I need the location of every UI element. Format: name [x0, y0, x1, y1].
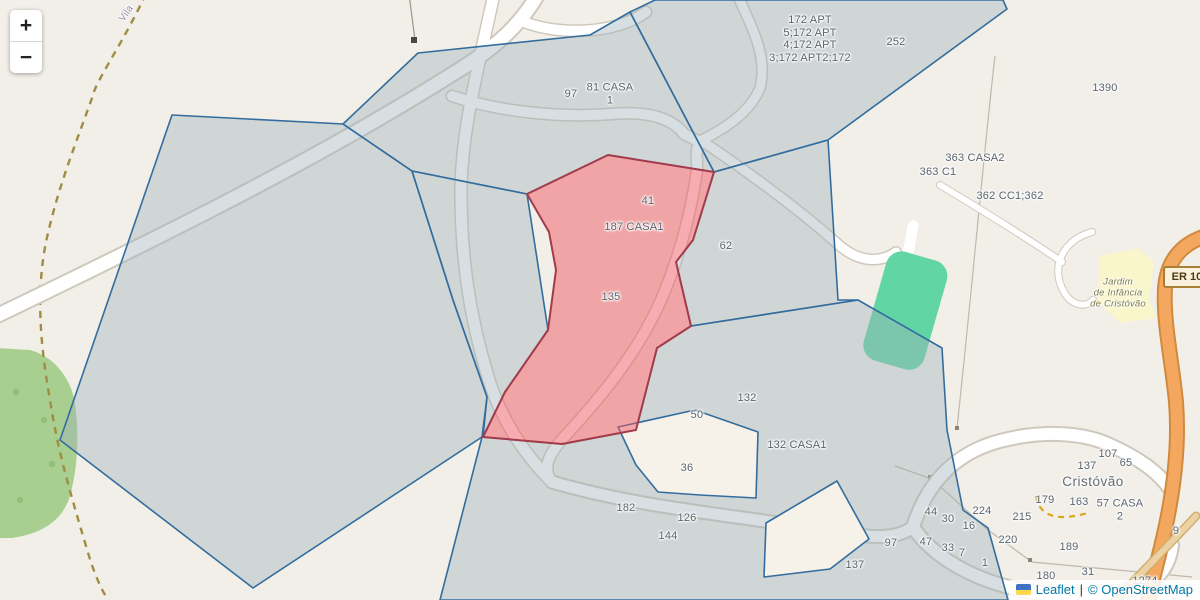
road-shield: ER 108	[1163, 266, 1200, 288]
leaflet-link[interactable]: Leaflet	[1036, 582, 1075, 597]
attribution-bar: Leaflet | © OpenStreetMap	[1009, 580, 1200, 600]
attribution-separator: |	[1080, 582, 1083, 597]
pole-marker	[411, 37, 417, 43]
osm-link[interactable]: © OpenStreetMap	[1088, 582, 1193, 597]
zoom-control: + −	[10, 10, 42, 73]
map-viewport[interactable]: Vila 97 81 CASA 1 172 APT 5;172 APT 4;17…	[0, 0, 1200, 600]
zoom-out-button[interactable]: −	[10, 41, 42, 73]
map-canvas	[0, 0, 1200, 600]
zoom-in-button[interactable]: +	[10, 10, 42, 41]
ukraine-flag-icon	[1016, 584, 1031, 595]
